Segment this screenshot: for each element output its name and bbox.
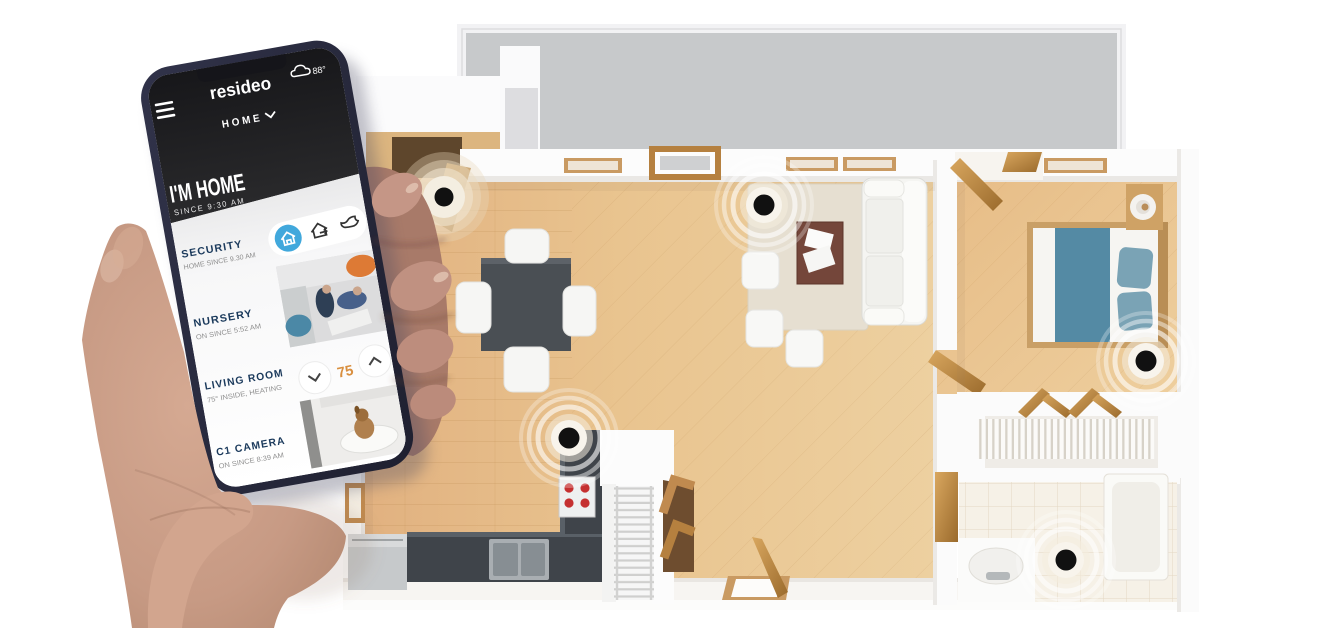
- svg-text:75: 75: [336, 363, 355, 382]
